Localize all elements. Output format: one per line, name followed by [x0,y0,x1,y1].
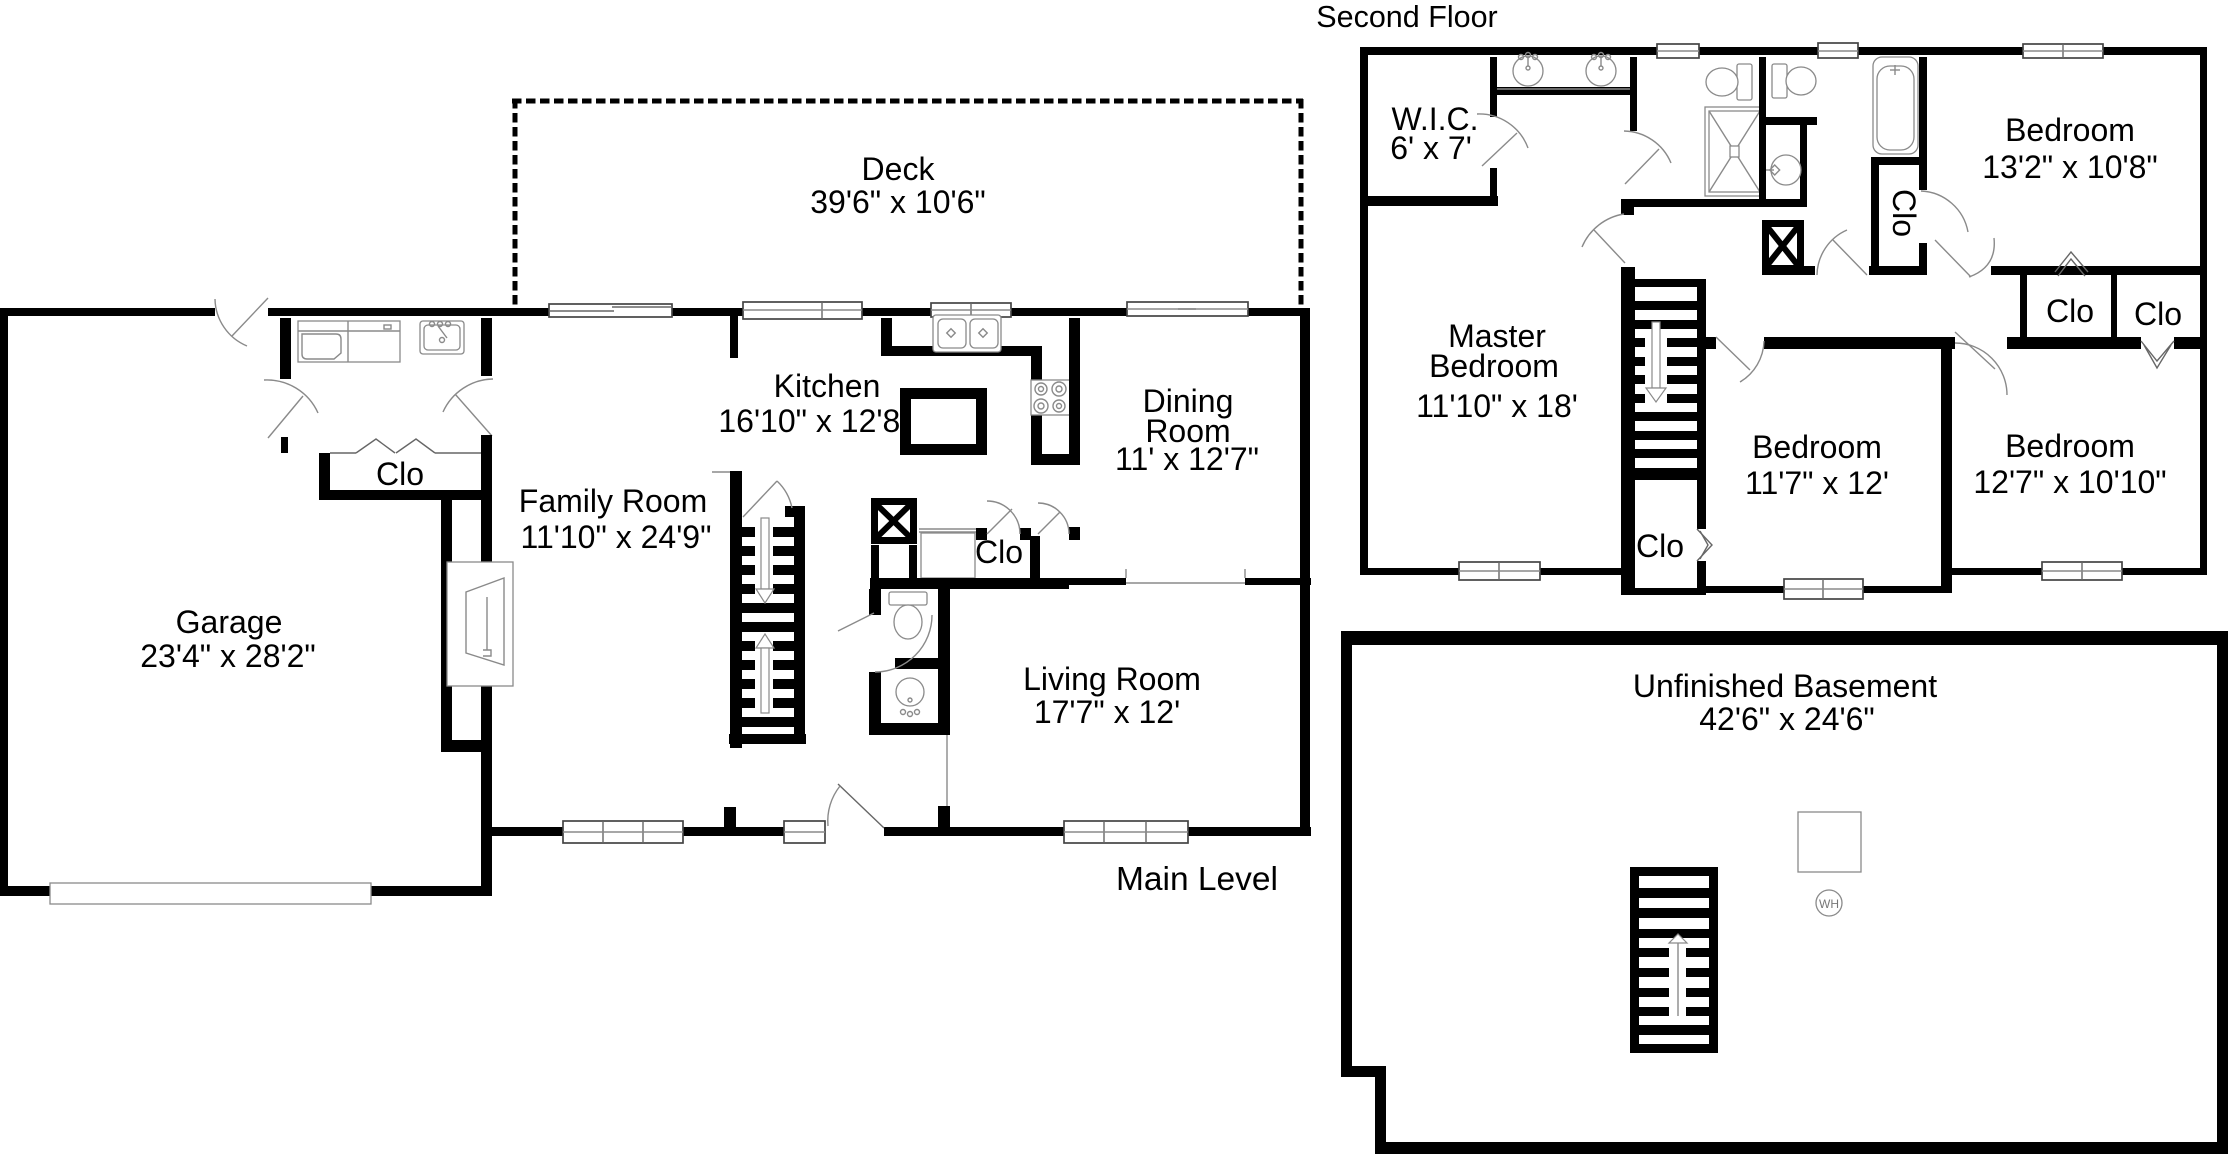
svg-text:Second Floor: Second Floor [1316,0,1497,34]
svg-text:13'2" x 10'8": 13'2" x 10'8" [1982,149,2158,185]
svg-text:Deck: Deck [862,151,936,187]
svg-text:Clo: Clo [1636,528,1684,564]
svg-text:Bedroom: Bedroom [1429,348,1559,384]
svg-text:11'10" x 24'9": 11'10" x 24'9" [521,519,712,555]
svg-text:Kitchen: Kitchen [774,368,881,404]
svg-text:Unfinished Basement: Unfinished Basement [1633,668,1937,704]
svg-text:Garage: Garage [176,604,283,640]
svg-text:Main Level: Main Level [1116,861,1278,898]
svg-text:Family Room: Family Room [519,483,707,519]
svg-text:Bedroom: Bedroom [2005,428,2135,464]
svg-text:23'4" x 28'2": 23'4" x 28'2" [140,638,316,674]
svg-text:Living Room: Living Room [1023,661,1201,697]
svg-text:Clo: Clo [2134,296,2182,332]
svg-text:Bedroom: Bedroom [1752,429,1882,465]
svg-text:6' x 7': 6' x 7' [1390,130,1472,166]
svg-text:39'6" x 10'6": 39'6" x 10'6" [810,184,986,220]
svg-text:16'10" x 12'8": 16'10" x 12'8" [718,403,911,439]
svg-text:Clo: Clo [1886,189,1922,237]
svg-text:Clo: Clo [975,534,1023,570]
svg-text:42'6" x 24'6": 42'6" x 24'6" [1699,701,1875,737]
svg-text:11'7" x 12': 11'7" x 12' [1745,465,1889,501]
svg-text:Bedroom: Bedroom [2005,112,2135,148]
svg-text:12'7" x 10'10": 12'7" x 10'10" [1973,464,2166,500]
svg-text:Clo: Clo [376,456,424,492]
svg-text:11' x 12'7": 11' x 12'7" [1115,441,1259,477]
svg-text:11'10" x 18': 11'10" x 18' [1416,388,1578,424]
svg-text:WH: WH [1819,897,1839,911]
svg-text:Clo: Clo [2046,293,2094,329]
svg-text:17'7" x 12': 17'7" x 12' [1034,694,1180,730]
